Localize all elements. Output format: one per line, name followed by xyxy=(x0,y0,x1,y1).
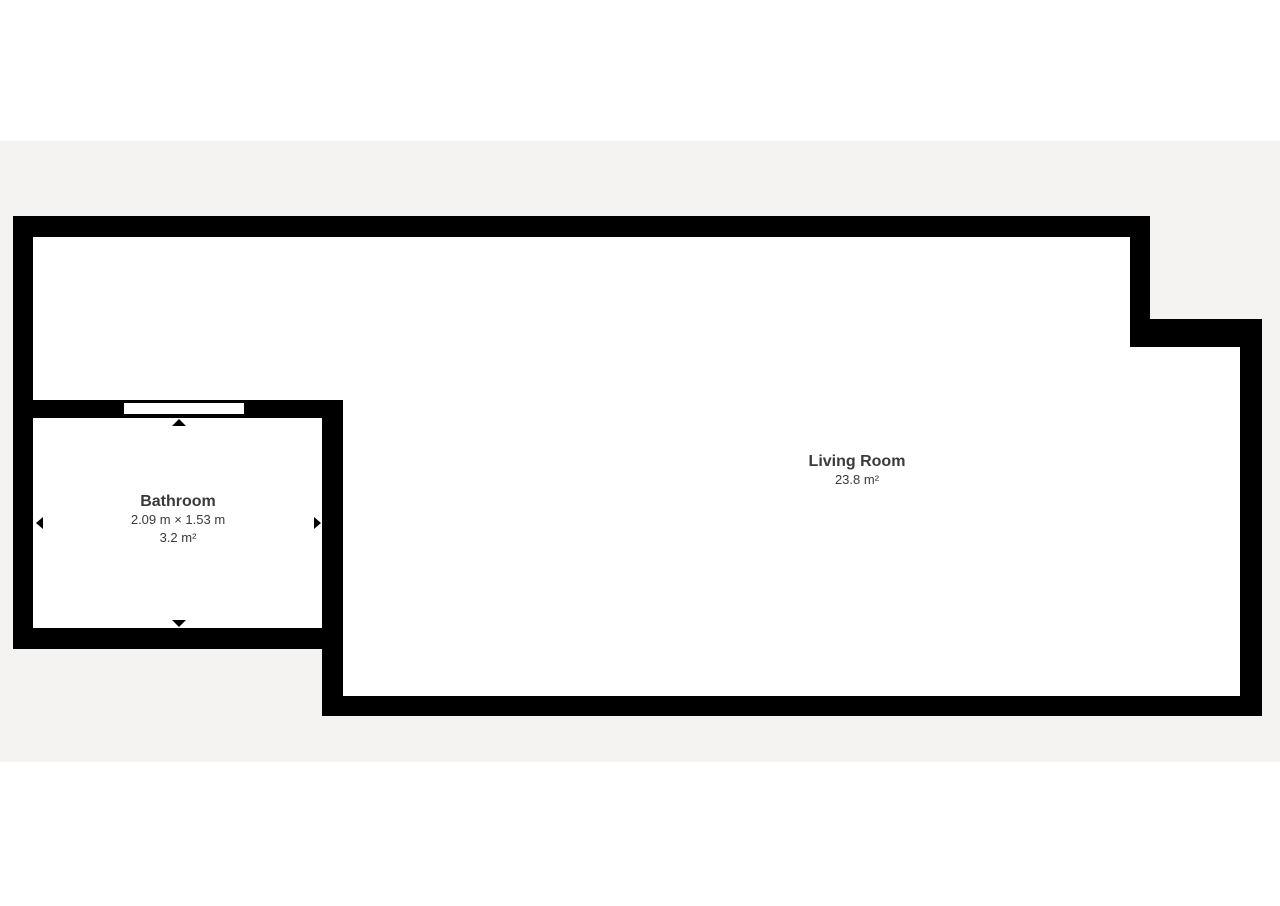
dimension-arrow-up-icon xyxy=(172,419,186,426)
floorplan-viewer: Living Room 23.8 m² Bathroom 2.09 m × 1.… xyxy=(0,0,1280,906)
living-room-floor-lower[interactable] xyxy=(343,400,1132,696)
bathroom-wall-right xyxy=(322,400,343,716)
living-room-floor-right-extension[interactable] xyxy=(1132,347,1240,696)
wall-right xyxy=(1240,319,1262,716)
living-room-area: 23.8 m² xyxy=(737,471,977,489)
living-room-name: Living Room xyxy=(737,452,977,471)
bathroom-label: Bathroom 2.09 m × 1.53 m 3.2 m² xyxy=(58,492,298,547)
dimension-arrow-left-icon xyxy=(36,517,43,529)
wall-top xyxy=(13,216,1150,237)
bathroom-dimensions: 2.09 m × 1.53 m xyxy=(58,511,298,529)
wall-bottom xyxy=(322,696,1262,716)
bathroom-door-opening xyxy=(124,403,244,414)
living-room-label: Living Room 23.8 m² xyxy=(737,452,977,489)
living-room-floor-upper[interactable] xyxy=(33,237,1132,400)
bathroom-wall-bottom xyxy=(13,628,343,649)
bathroom-area: 3.2 m² xyxy=(58,529,298,547)
bathroom-name: Bathroom xyxy=(58,492,298,511)
dimension-arrow-down-icon xyxy=(172,620,186,627)
dimension-arrow-right-icon xyxy=(314,517,321,529)
wall-left xyxy=(13,216,33,649)
